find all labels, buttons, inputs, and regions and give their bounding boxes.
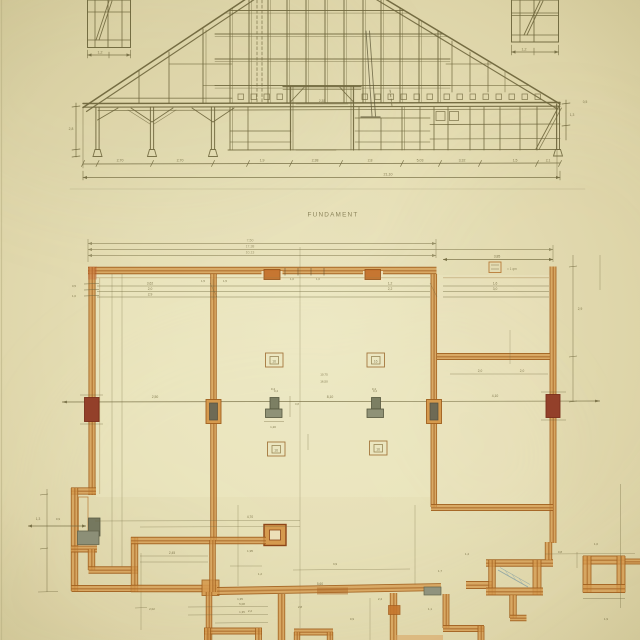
- svg-text:1,6: 1,6: [493, 282, 498, 286]
- svg-text:17,38: 17,38: [246, 245, 255, 249]
- svg-text:0,8: 0,8: [558, 550, 563, 554]
- svg-text:2,1: 2,1: [546, 159, 551, 163]
- svg-text:3,9: 3,9: [333, 562, 338, 566]
- svg-text:0,4: 0,4: [372, 387, 377, 391]
- svg-text:2,8: 2,8: [298, 605, 303, 609]
- svg-text:FUNDAMENT: FUNDAMENT: [308, 212, 359, 219]
- svg-text:1,5: 1,5: [201, 279, 205, 283]
- svg-text:= 1 qm: = 1 qm: [507, 267, 517, 271]
- svg-text:5,08: 5,08: [239, 602, 245, 606]
- svg-text:1,4: 1,4: [465, 552, 470, 556]
- svg-text:5,03: 5,03: [417, 159, 424, 163]
- svg-text:1,3: 1,3: [570, 113, 575, 117]
- svg-text:2,02: 2,02: [149, 607, 155, 611]
- svg-text:2,38: 2,38: [312, 159, 319, 163]
- svg-text:2,9: 2,9: [148, 293, 153, 297]
- svg-text:2,4: 2,4: [378, 597, 383, 601]
- svg-text:1,35: 1,35: [237, 597, 243, 601]
- svg-text:1,95: 1,95: [247, 549, 253, 553]
- svg-text:1,3: 1,3: [36, 517, 41, 521]
- svg-text:16: 16: [376, 448, 380, 452]
- svg-text:3,85: 3,85: [494, 255, 501, 259]
- svg-text:1,2: 1,2: [98, 51, 103, 55]
- svg-text:1,2: 1,2: [388, 282, 393, 286]
- svg-text:1,2: 1,2: [258, 572, 263, 576]
- svg-text:2,45: 2,45: [169, 551, 175, 555]
- svg-text:2,70: 2,70: [177, 159, 184, 163]
- svg-text:3,0: 3,0: [493, 287, 498, 291]
- svg-text:10,75: 10,75: [320, 373, 328, 377]
- svg-text:8,10: 8,10: [327, 395, 334, 399]
- svg-text:1,35: 1,35: [239, 610, 245, 614]
- svg-text:1,20: 1,20: [270, 425, 276, 429]
- svg-text:3,62: 3,62: [147, 282, 154, 286]
- svg-text:7,50: 7,50: [247, 239, 254, 243]
- svg-text:2,70: 2,70: [117, 159, 124, 163]
- svg-text:1,0: 1,0: [594, 542, 599, 546]
- svg-text:1,9: 1,9: [604, 617, 609, 621]
- svg-text:0,4: 0,4: [271, 387, 276, 391]
- svg-text:2,38: 2,38: [319, 99, 325, 103]
- svg-text:4,10: 4,10: [492, 394, 499, 398]
- svg-text:2,8: 2,8: [368, 159, 373, 163]
- svg-text:1,9: 1,9: [260, 159, 265, 163]
- svg-text:1,5: 1,5: [513, 159, 518, 163]
- svg-text:2,0: 2,0: [148, 287, 153, 291]
- svg-text:4,70: 4,70: [247, 515, 253, 519]
- svg-text:1,1: 1,1: [428, 607, 433, 611]
- svg-text:1,0: 1,0: [72, 294, 76, 298]
- svg-text:21,10: 21,10: [384, 173, 393, 177]
- svg-text:1,7: 1,7: [438, 569, 443, 573]
- svg-text:0,9: 0,9: [56, 517, 61, 521]
- svg-text:16: 16: [374, 360, 378, 364]
- svg-text:0,8: 0,8: [295, 402, 299, 406]
- svg-text:2,9: 2,9: [578, 307, 583, 311]
- svg-text:16,50: 16,50: [320, 380, 328, 384]
- svg-text:0,9: 0,9: [350, 617, 355, 621]
- svg-text:0,5: 0,5: [72, 284, 76, 288]
- svg-text:3,32: 3,32: [459, 159, 466, 163]
- svg-text:16: 16: [274, 449, 278, 453]
- svg-text:5,60: 5,60: [317, 582, 323, 586]
- svg-text:1,2: 1,2: [522, 48, 527, 52]
- svg-text:2,8: 2,8: [69, 127, 74, 131]
- svg-text:1,5: 1,5: [223, 279, 227, 283]
- svg-text:2,2: 2,2: [388, 287, 393, 291]
- svg-text:2,50: 2,50: [152, 395, 159, 399]
- svg-text:10,13: 10,13: [246, 251, 255, 255]
- svg-text:16: 16: [272, 360, 276, 364]
- svg-text:0,5: 0,5: [583, 100, 588, 104]
- svg-text:2,0: 2,0: [478, 369, 483, 373]
- svg-text:2,2: 2,2: [248, 609, 253, 613]
- svg-text:2,0: 2,0: [520, 369, 525, 373]
